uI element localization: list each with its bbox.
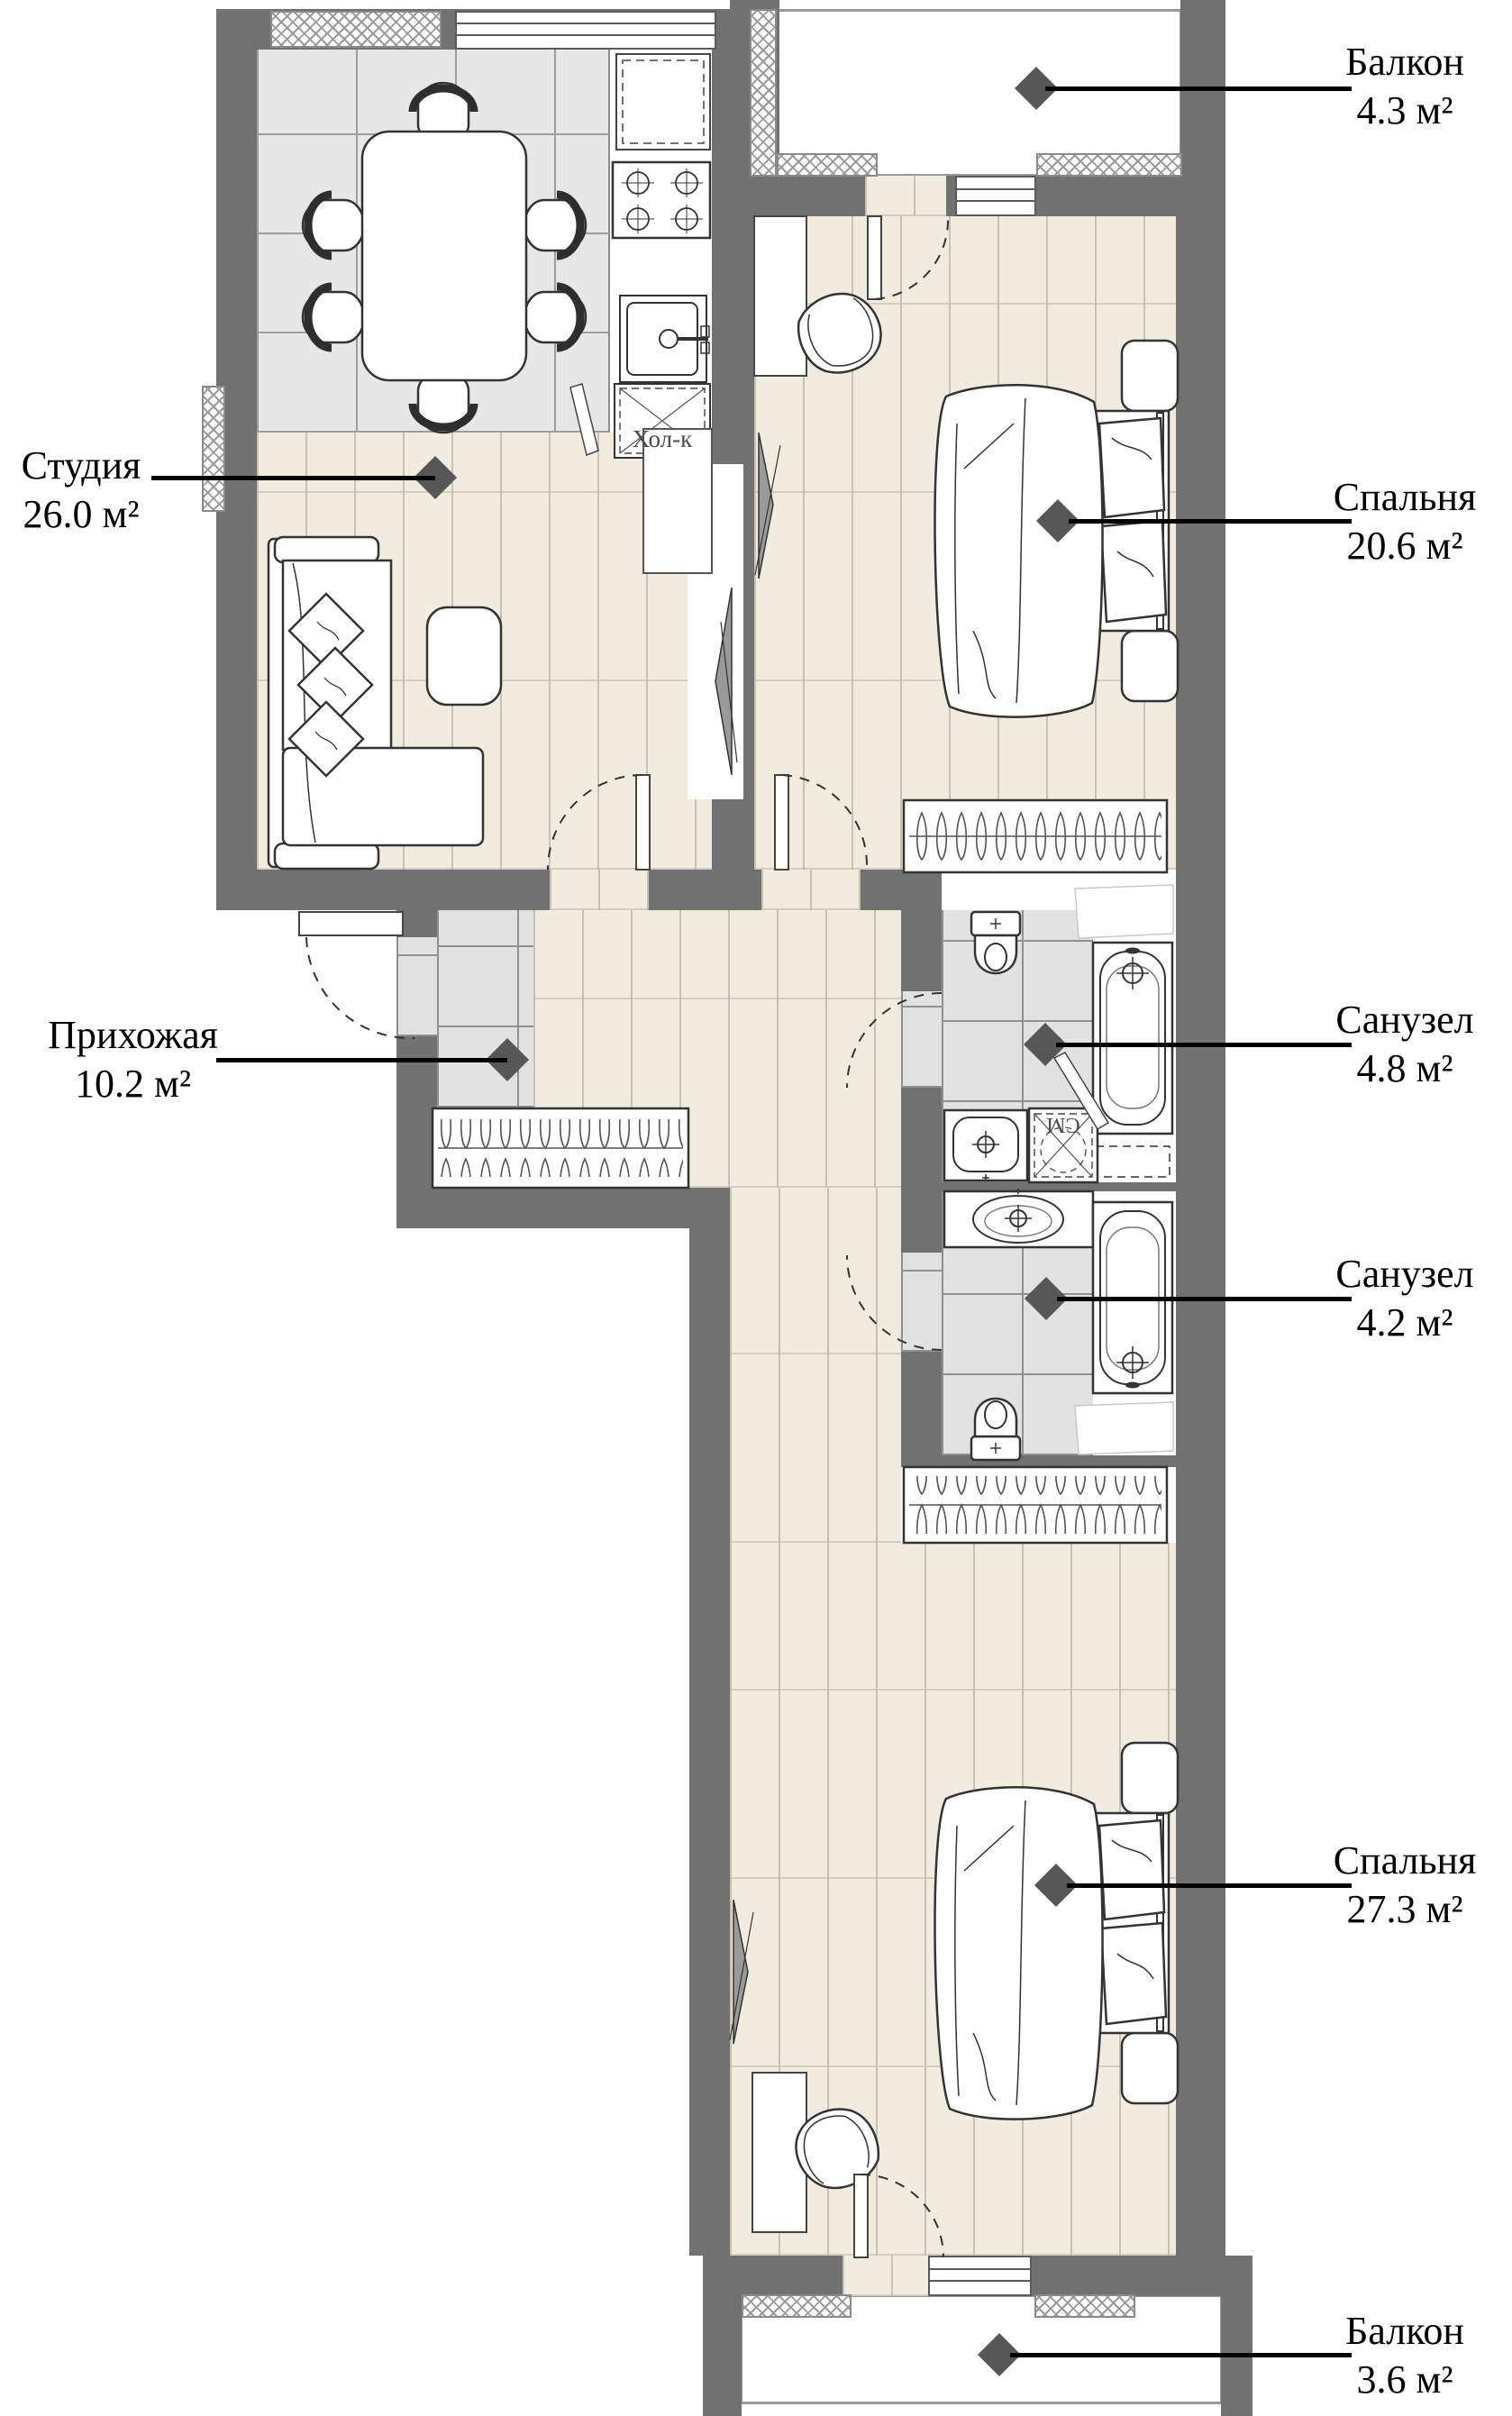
- fridge-label: Хол-к: [615, 425, 710, 453]
- room-label-studio: Студия 26.0 м²: [0, 442, 162, 539]
- stove: [613, 162, 710, 238]
- room-name: Балкон: [1298, 38, 1512, 87]
- door-studio: [548, 775, 650, 870]
- room-area: 27.3 м²: [1298, 1885, 1512, 1934]
- room-area: 4.2 м²: [1298, 1299, 1512, 1347]
- door-bedroom-top: [775, 775, 867, 870]
- room-name: Прихожая: [14, 1011, 252, 1060]
- vanity-bottom: [944, 1189, 1093, 1247]
- worktop: [616, 54, 710, 150]
- dining-table: [362, 132, 526, 380]
- room-label-balcony-bottom: Балкон 3.6 м²: [1298, 2307, 1512, 2404]
- leader-studio: [151, 476, 435, 480]
- coffee-table: [427, 607, 501, 705]
- toilet-top: [971, 912, 1020, 973]
- sofa: [269, 537, 501, 869]
- leader-hallway: [216, 1058, 507, 1062]
- room-label-balcony-top: Балкон 4.3 м²: [1298, 38, 1512, 135]
- furniture-layer: [0, 0, 1512, 2416]
- room-label-hallway: Прихожая 10.2 м²: [14, 1011, 252, 1108]
- room-name: Студия: [0, 442, 162, 490]
- door-balcony-top: [868, 216, 948, 299]
- studio-tv: [715, 588, 737, 775]
- bathtub-top: [1093, 943, 1172, 1134]
- washbasin-top: [944, 1110, 1027, 1181]
- room-name: Балкон: [1298, 2307, 1512, 2356]
- closet-bedroom-top: [904, 800, 1167, 872]
- room-label-bathroom-top: Санузел 4.8 м²: [1298, 996, 1512, 1093]
- floor-plan: Балкон 4.3 м² Студия 26.0 м² Спальня 20.…: [0, 0, 1512, 2416]
- room-area: 20.6 м²: [1298, 522, 1512, 570]
- room-label-bedroom-bottom: Спальня 27.3 м²: [1298, 1837, 1512, 1934]
- kitchen-appliances: [570, 54, 710, 458]
- kitchen-sink: [620, 296, 709, 382]
- room-area: 26.0 м²: [0, 490, 162, 539]
- room-name: Спальня: [1298, 1837, 1512, 1885]
- closet-hallway: [433, 1108, 688, 1188]
- room-area: 4.8 м²: [1298, 1044, 1512, 1093]
- dining-table-set: [303, 83, 586, 433]
- room-label-bathroom-bottom: Санузел 4.2 м²: [1298, 1250, 1512, 1347]
- shelf-bathroom-top: [1075, 885, 1173, 938]
- toilet-bottom: [971, 1399, 1020, 1460]
- washing-machine-label: СМ: [1038, 1112, 1088, 1136]
- room-area: 3.6 м²: [1298, 2356, 1512, 2404]
- kitchen-door-leaf: [570, 384, 598, 455]
- door-bathroom-bottom-arc: [847, 1255, 942, 1350]
- room-name: Санузел: [1298, 1250, 1512, 1299]
- bedroom-top-tv: [755, 433, 780, 579]
- door-entrance: [299, 912, 414, 1038]
- bathtub-top-apron: [1096, 1146, 1170, 1177]
- room-label-bedroom-top: Спальня 20.6 м²: [1298, 473, 1512, 570]
- bedroom-bottom-tv: [730, 1900, 753, 2044]
- shelf-bathroom-bottom: [1075, 1402, 1173, 1454]
- room-name: Спальня: [1298, 473, 1512, 522]
- room-area: 4.3 м²: [1298, 87, 1512, 135]
- bed-bottom: [935, 1743, 1178, 2120]
- room-area: 10.2 м²: [14, 1060, 252, 1108]
- door-bathroom-top-arc: [847, 993, 942, 1088]
- closet-bedroom-bottom: [904, 1467, 1167, 1543]
- room-name: Санузел: [1298, 996, 1512, 1044]
- door-balcony-bottom: [854, 2174, 943, 2257]
- bedroom-top-wardrobe: [754, 216, 806, 376]
